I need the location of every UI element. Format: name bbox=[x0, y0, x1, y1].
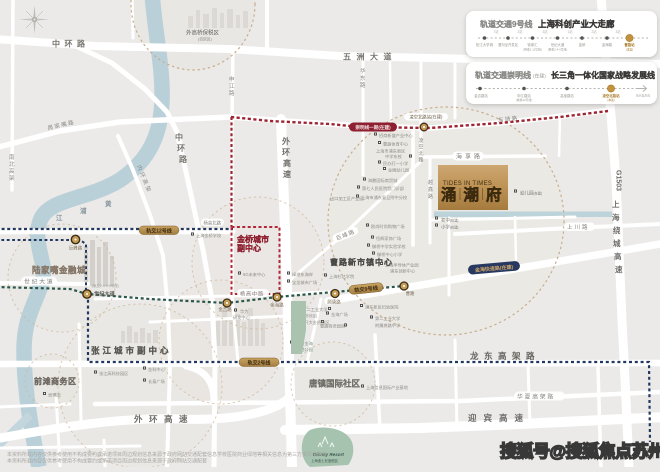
svg-text:曹路商务园区: 曹路商务园区 bbox=[320, 323, 345, 330]
svg-text:越鑫路: 越鑫路 bbox=[428, 179, 433, 200]
svg-text:金桥: 金桥 bbox=[579, 42, 586, 47]
svg-text:松江大学城: 松江大学城 bbox=[476, 42, 494, 47]
svg-text:上海市浦东复旦附中分校: 上海市浦东复旦附中分校 bbox=[361, 194, 408, 201]
svg-text:上海科创产业大走廊: 上海科创产业大走廊 bbox=[538, 19, 615, 29]
svg-text:轨道交通崇明线: 轨道交通崇明线 bbox=[475, 70, 531, 80]
svg-text:(在建): (在建) bbox=[533, 73, 546, 80]
svg-text:海鹏国际商贸城: 海鹏国际商贸城 bbox=[368, 177, 398, 184]
svg-text:中环路: 中环路 bbox=[52, 39, 90, 49]
svg-text:五洲大道: 五洲大道 bbox=[343, 52, 397, 62]
svg-text:上海杉达学院: 上海杉达学院 bbox=[329, 273, 355, 280]
svg-text:上海信息国际产业基地: 上海信息国际产业基地 bbox=[366, 384, 409, 391]
svg-text:世纪大道: 世纪大道 bbox=[24, 278, 54, 286]
svg-text:华为: 华为 bbox=[240, 308, 248, 315]
svg-text:2站: 2站 bbox=[592, 29, 598, 34]
svg-text:本资料所载内容仅供参考使用不构成要约或承诺项目周边规划信息来: 本资料所载内容仅供参考使用不构成要约或承诺项目周边规划信息来源于政府网站交通配套… bbox=[7, 451, 327, 458]
svg-text:招商新盛产业中心: 招商新盛产业中心 bbox=[379, 132, 413, 139]
svg-text:(自贸区): (自贸区) bbox=[198, 37, 213, 42]
svg-text:上海迪士尼度假区: 上海迪士尼度假区 bbox=[311, 458, 339, 463]
svg-text:世纪大道: 世纪大道 bbox=[551, 42, 565, 47]
svg-text:1站: 1站 bbox=[568, 29, 574, 34]
svg-text:海享路: 海享路 bbox=[456, 153, 483, 161]
svg-text:上海半导体产业园: 上海半导体产业园 bbox=[385, 262, 419, 269]
svg-text:绿地东海岸: 绿地东海岸 bbox=[292, 271, 313, 278]
svg-text:曹路站: 曹路站 bbox=[624, 42, 635, 47]
svg-text:外环高速: 外环高速 bbox=[133, 414, 194, 424]
svg-text:搜狐号@搜狐焦点苏州站: 搜狐号@搜狐焦点苏州站 bbox=[500, 441, 660, 461]
svg-text:金海广场: 金海广场 bbox=[331, 311, 348, 318]
svg-text:徐家汇: 徐家汇 bbox=[527, 42, 538, 47]
svg-text:涌潮府: 涌潮府 bbox=[441, 185, 502, 204]
svg-text:轨道交通9号线: 轨道交通9号线 bbox=[480, 19, 532, 29]
svg-text:御桥中心小学: 御桥中心小学 bbox=[377, 251, 402, 258]
svg-text:轨交2号线: 轨交2号线 bbox=[248, 360, 271, 367]
svg-text:曹路体育中心: 曹路体育中心 bbox=[383, 141, 409, 148]
svg-text:华东路: 华东路 bbox=[360, 67, 366, 89]
svg-text:本资料所载内容仅供参考使用不构成要约或承诺项目周边规划信息来: 本资料所载内容仅供参考使用不构成要约或承诺项目周边规划信息来源于政府网站交通配套 bbox=[7, 458, 207, 465]
svg-text:世博园: 世博园 bbox=[48, 392, 61, 399]
svg-text:幼儿园(在建): 幼儿园(在建) bbox=[520, 190, 542, 197]
svg-text:宝龙城市广场: 宝龙城市广场 bbox=[292, 279, 317, 286]
svg-text:高宝路站: 高宝路站 bbox=[560, 93, 574, 98]
svg-text:顾唐路: 顾唐路 bbox=[327, 299, 341, 306]
svg-text:(本案): (本案) bbox=[626, 48, 634, 52]
svg-text:中学东校: 中学东校 bbox=[385, 153, 403, 160]
svg-text:浦东创新中心: 浦东创新中心 bbox=[390, 268, 416, 275]
svg-text:5G未来中心: 5G未来中心 bbox=[243, 271, 266, 278]
svg-text:长泰广场: 长泰广场 bbox=[148, 378, 165, 385]
svg-text:长兴岛方向: 长兴岛方向 bbox=[636, 94, 650, 98]
svg-text:金海路: 金海路 bbox=[602, 42, 613, 47]
svg-text:2站: 2站 bbox=[518, 29, 524, 34]
svg-text:华夏高架路: 华夏高架路 bbox=[517, 393, 555, 401]
svg-text:附属龚路中学: 附属龚路中学 bbox=[375, 322, 400, 329]
svg-text:上川路: 上川路 bbox=[567, 223, 590, 231]
svg-text:前滩商务区: 前滩商务区 bbox=[34, 376, 77, 386]
svg-text:张江城市副中心: 张江城市副中心 bbox=[91, 346, 172, 356]
svg-text:凌空北路: 凌空北路 bbox=[419, 137, 424, 164]
svg-text:金海路: 金海路 bbox=[270, 302, 284, 309]
svg-text:(换乘12号线): (换乘12号线) bbox=[516, 98, 532, 102]
svg-text:杨高北路: 杨高北路 bbox=[204, 219, 222, 226]
svg-text:漕河泾开发区: 漕河泾开发区 bbox=[498, 42, 519, 47]
svg-text:初中(在建): 初中(在建) bbox=[441, 217, 459, 224]
svg-text:金吉路: 金吉路 bbox=[218, 306, 232, 313]
svg-text:出口加工区产业园: 出口加工区产业园 bbox=[330, 195, 364, 202]
svg-text:崇明线一期(在建): 崇明线一期(在建) bbox=[354, 124, 391, 131]
svg-text:巨峰路: 巨峰路 bbox=[69, 245, 83, 252]
svg-text:3站: 3站 bbox=[616, 29, 622, 34]
svg-text:外高桥保税区: 外高桥保税区 bbox=[186, 29, 220, 37]
svg-text:南北高架: 南北高架 bbox=[9, 153, 15, 182]
svg-text:(换乘1·11号线): (换乘1·11号线) bbox=[523, 48, 542, 52]
svg-text:民办打一小学: 民办打一小学 bbox=[383, 160, 408, 167]
svg-text:世纪大道: 世纪大道 bbox=[94, 290, 116, 298]
svg-text:金囿幼儿园: 金囿幼儿园 bbox=[388, 167, 409, 174]
svg-text:(换乘2·4·6号线): (换乘2·4·6号线) bbox=[548, 48, 568, 52]
svg-text:金吉路站: 金吉路站 bbox=[474, 93, 488, 98]
svg-text:(轨交2·4·6·9号线): (轨交2·4·6·9号线) bbox=[92, 283, 119, 288]
svg-text:(本案): (本案) bbox=[607, 98, 615, 102]
svg-text:研发中心: 研发中心 bbox=[233, 314, 251, 321]
svg-text:龙东高架路: 龙东高架路 bbox=[469, 351, 540, 361]
svg-text:凌空北路站(在建): 凌空北路站(在建) bbox=[410, 114, 444, 121]
svg-text:欧尚时尚购物广场: 欧尚时尚购物广场 bbox=[371, 223, 405, 230]
svg-text:恒辉家饰广场: 恒辉家饰广场 bbox=[376, 235, 401, 242]
svg-text:G1503: G1503 bbox=[615, 170, 622, 191]
svg-text:金科中心: 金科中心 bbox=[148, 366, 166, 373]
svg-text:7站: 7站 bbox=[494, 29, 500, 34]
svg-text:浦东新区妇幼医院: 浦东新区妇幼医院 bbox=[365, 304, 399, 311]
svg-text:第七人民医院暨门诊部: 第七人民医院暨门诊部 bbox=[362, 185, 404, 192]
svg-text:轨交12号线: 轨交12号线 bbox=[146, 228, 172, 235]
svg-text:第二工业大学: 第二工业大学 bbox=[375, 315, 400, 322]
svg-text:杨高中路: 杨高中路 bbox=[240, 290, 264, 298]
svg-text:曹路: 曹路 bbox=[406, 290, 415, 297]
svg-text:御桥中学实验学校: 御桥中学实验学校 bbox=[372, 243, 406, 250]
svg-text:申江路: 申江路 bbox=[229, 75, 235, 97]
svg-text:长三角一体化国家战略发展线: 长三角一体化国家战略发展线 bbox=[551, 70, 655, 80]
svg-text:迎宾高速: 迎宾高速 bbox=[468, 413, 530, 423]
svg-text:唐镇国际社区: 唐镇国际社区 bbox=[309, 379, 361, 389]
svg-text:张江高科技园区: 张江高科技园区 bbox=[99, 370, 128, 377]
svg-text:上海金桥学校: 上海金桥学校 bbox=[196, 232, 222, 239]
svg-text:3站: 3站 bbox=[543, 29, 549, 34]
svg-text:曹路新市镇中心: 曹路新市镇中心 bbox=[330, 257, 393, 267]
svg-text:小学(在建): 小学(在建) bbox=[441, 224, 459, 231]
svg-text:陆家嘴金融城: 陆家嘴金融城 bbox=[32, 265, 86, 275]
